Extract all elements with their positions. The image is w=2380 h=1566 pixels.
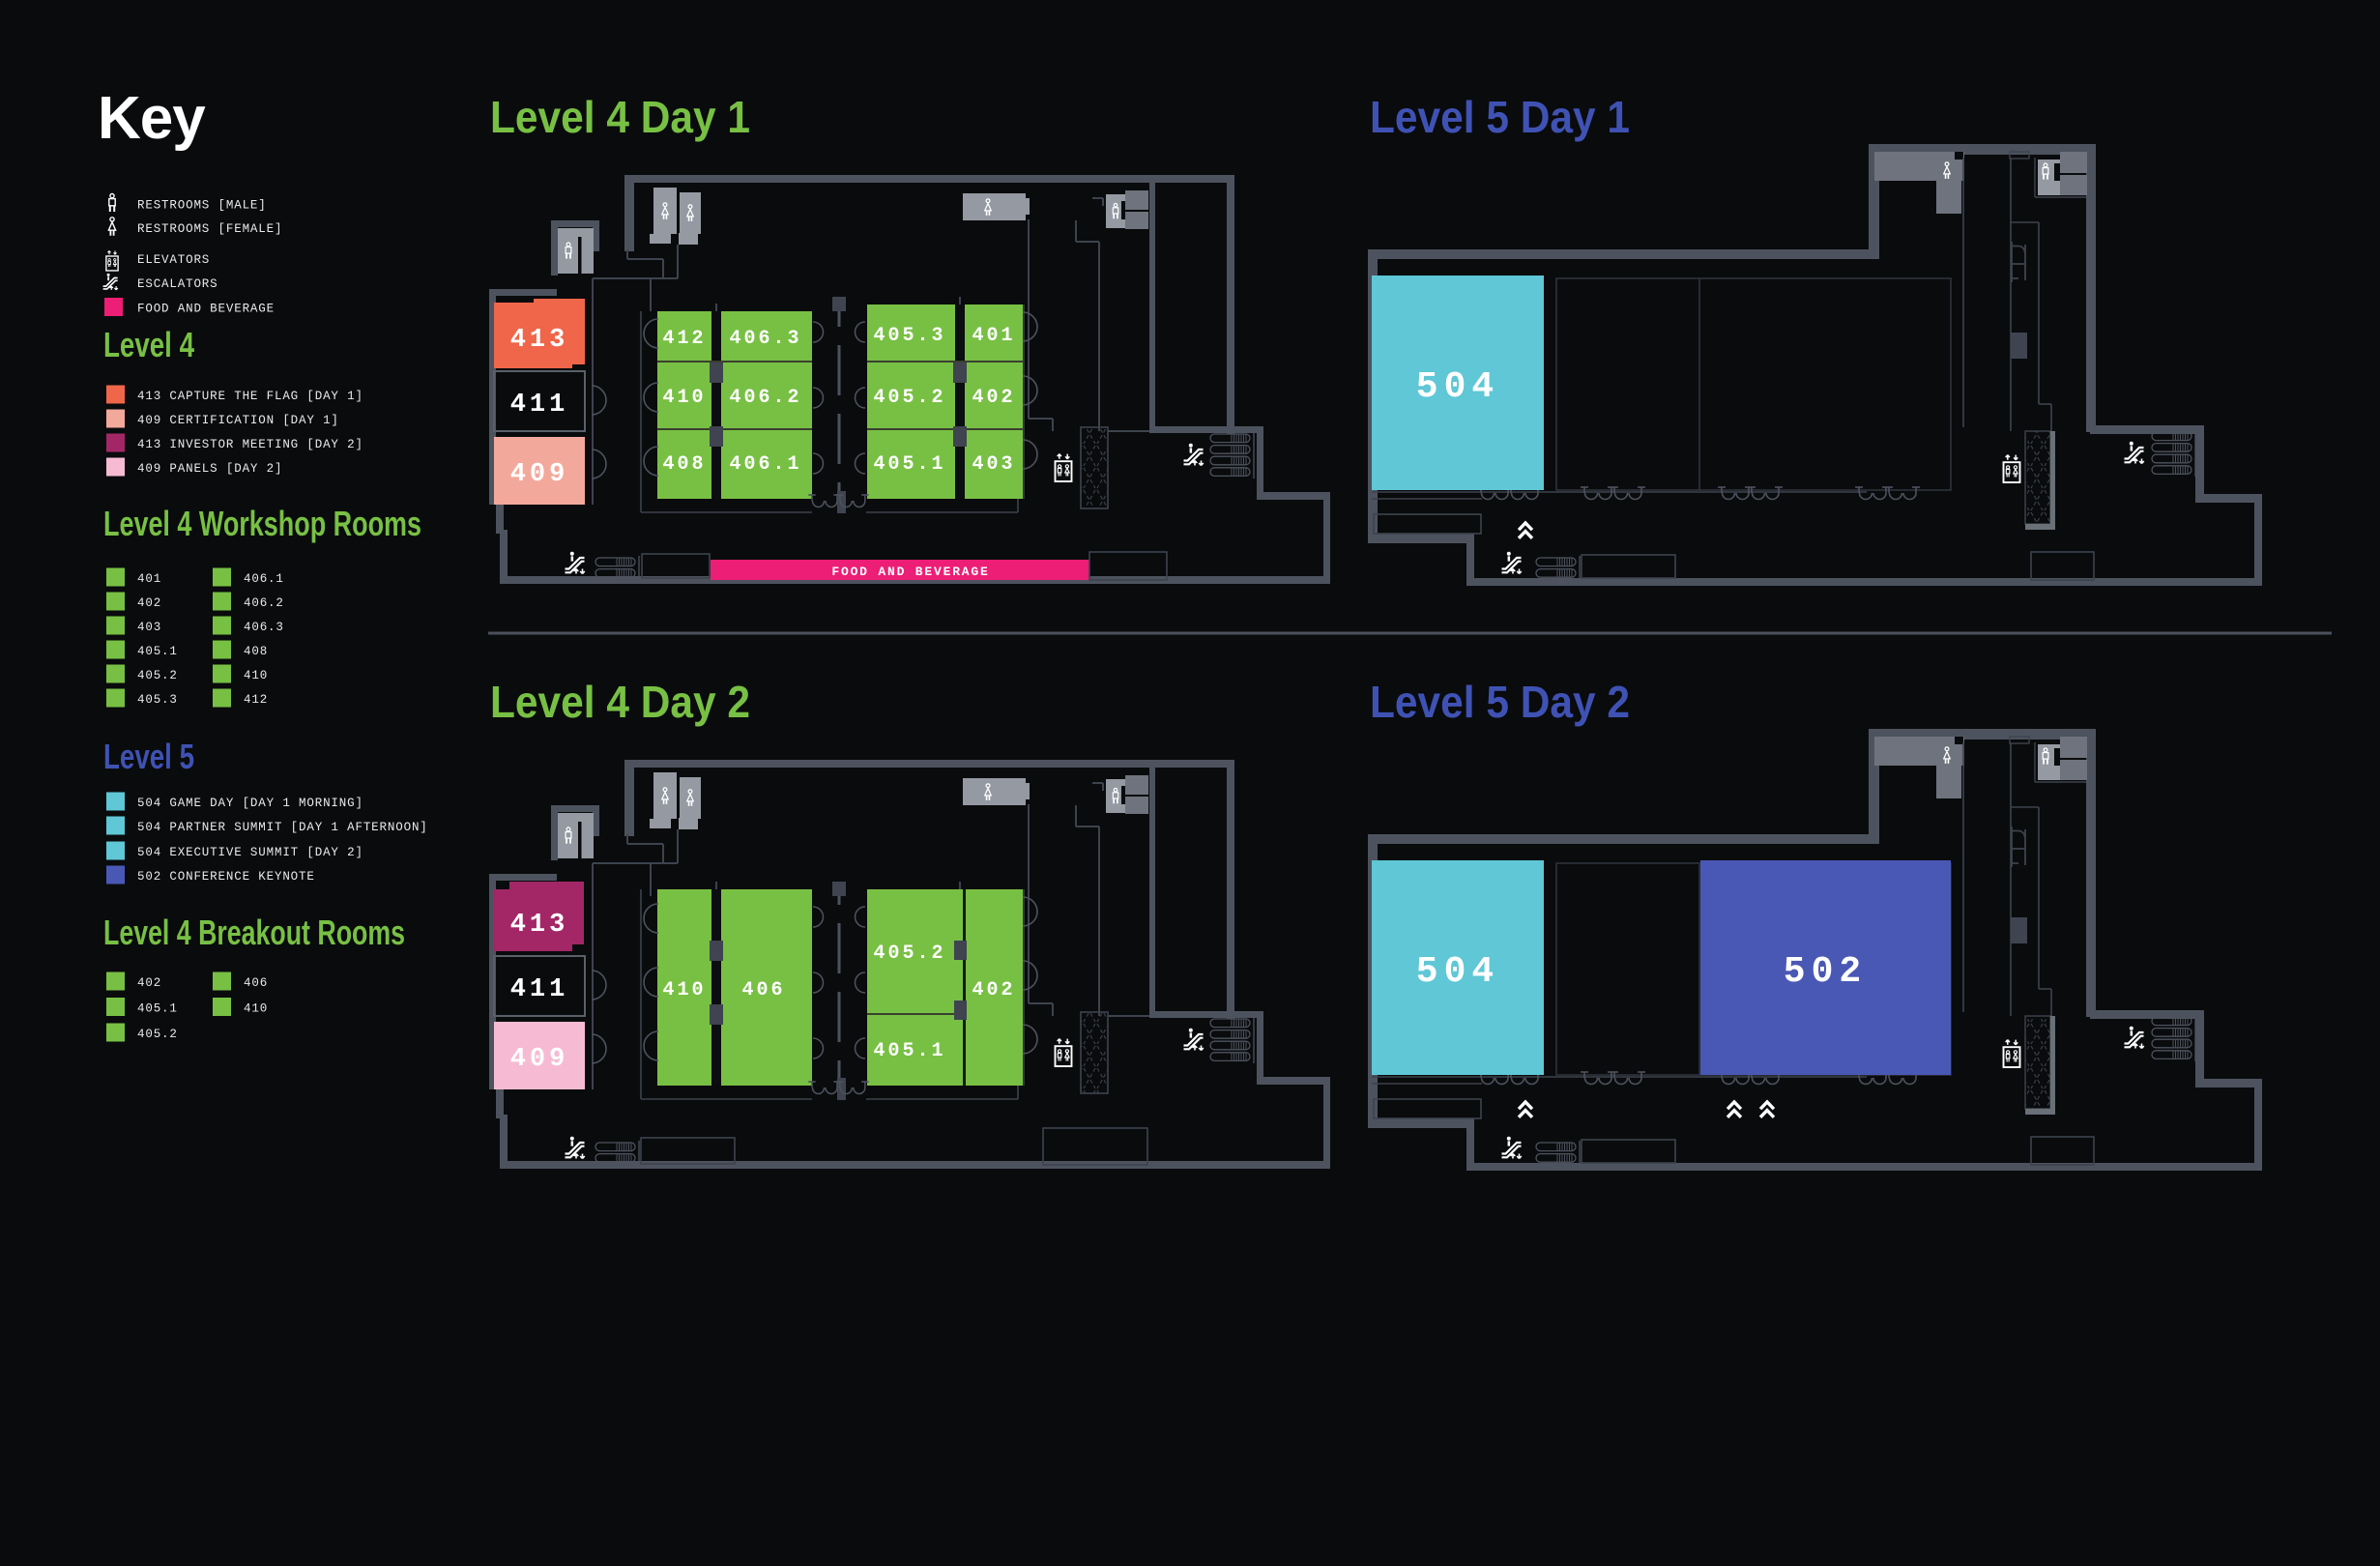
svg-text:410: 410 bbox=[662, 387, 706, 409]
svg-text:405.1: 405.1 bbox=[873, 453, 945, 476]
svg-text:413 CAPTURE THE FLAG [DAY 1]: 413 CAPTURE THE FLAG [DAY 1] bbox=[137, 390, 363, 403]
svg-text:FOOD AND BEVERAGE: FOOD AND BEVERAGE bbox=[831, 565, 989, 579]
svg-text:409 PANELS [DAY 2]: 409 PANELS [DAY 2] bbox=[137, 462, 282, 476]
svg-text:Level 4 Workshop Rooms: Level 4 Workshop Rooms bbox=[103, 504, 421, 543]
svg-text:408: 408 bbox=[244, 645, 268, 658]
svg-text:406.3: 406.3 bbox=[244, 621, 284, 634]
svg-text:ESCALATORS: ESCALATORS bbox=[137, 277, 218, 291]
svg-text:405.2: 405.2 bbox=[873, 942, 945, 965]
svg-text:Key: Key bbox=[98, 85, 206, 152]
svg-text:402: 402 bbox=[972, 979, 1015, 1001]
svg-text:409: 409 bbox=[510, 460, 569, 489]
svg-text:409: 409 bbox=[510, 1045, 569, 1074]
svg-text:405.1: 405.1 bbox=[137, 1002, 178, 1016]
svg-text:403: 403 bbox=[137, 621, 161, 634]
svg-text:405.2: 405.2 bbox=[873, 387, 945, 409]
svg-text:504 EXECUTIVE SUMMIT [DAY 2]: 504 EXECUTIVE SUMMIT [DAY 2] bbox=[137, 846, 363, 859]
svg-text:408: 408 bbox=[662, 453, 706, 476]
svg-text:405.1: 405.1 bbox=[873, 1040, 945, 1062]
svg-text:502: 502 bbox=[1784, 951, 1867, 993]
svg-text:504: 504 bbox=[1416, 366, 1499, 408]
svg-text:Level 4 Day 1: Level 4 Day 1 bbox=[490, 92, 750, 142]
svg-text:402: 402 bbox=[137, 976, 161, 990]
svg-text:RESTROOMS [FEMALE]: RESTROOMS [FEMALE] bbox=[137, 222, 282, 236]
svg-text:405.1: 405.1 bbox=[137, 645, 178, 658]
svg-text:FOOD AND BEVERAGE: FOOD AND BEVERAGE bbox=[137, 303, 275, 316]
svg-text:410: 410 bbox=[662, 979, 706, 1001]
svg-text:410: 410 bbox=[244, 1002, 268, 1016]
svg-text:504 GAME DAY [DAY 1 MORNING]: 504 GAME DAY [DAY 1 MORNING] bbox=[137, 797, 363, 810]
svg-text:406.1: 406.1 bbox=[244, 572, 284, 586]
svg-text:402: 402 bbox=[972, 387, 1015, 409]
svg-text:405.2: 405.2 bbox=[137, 1028, 178, 1041]
svg-text:401: 401 bbox=[137, 572, 161, 586]
svg-text:411: 411 bbox=[510, 391, 569, 420]
svg-text:405.3: 405.3 bbox=[137, 693, 178, 707]
svg-text:412: 412 bbox=[662, 328, 706, 350]
svg-text:ELEVATORS: ELEVATORS bbox=[137, 253, 210, 267]
svg-text:504 PARTNER SUMMIT [DAY 1 AFTE: 504 PARTNER SUMMIT [DAY 1 AFTERNOON] bbox=[137, 821, 428, 834]
svg-text:406.3: 406.3 bbox=[729, 328, 801, 350]
svg-text:413: 413 bbox=[510, 326, 569, 355]
svg-text:Level 4 Breakout Rooms: Level 4 Breakout Rooms bbox=[103, 913, 405, 952]
svg-text:502 CONFERENCE KEYNOTE: 502 CONFERENCE KEYNOTE bbox=[137, 870, 315, 884]
svg-text:Level 5 Day 2: Level 5 Day 2 bbox=[1370, 677, 1630, 727]
svg-text:406: 406 bbox=[244, 976, 268, 990]
svg-text:406.2: 406.2 bbox=[729, 387, 801, 409]
svg-text:Level 5 Day 1: Level 5 Day 1 bbox=[1370, 92, 1630, 142]
svg-text:Level 5: Level 5 bbox=[103, 737, 194, 776]
svg-text:RESTROOMS [MALE]: RESTROOMS [MALE] bbox=[137, 199, 267, 213]
svg-text:406: 406 bbox=[741, 979, 785, 1001]
svg-text:409 CERTIFICATION [DAY 1]: 409 CERTIFICATION [DAY 1] bbox=[137, 414, 339, 427]
svg-text:405.3: 405.3 bbox=[873, 325, 945, 347]
svg-text:504: 504 bbox=[1416, 951, 1499, 993]
svg-text:406.2: 406.2 bbox=[244, 596, 284, 610]
svg-text:Level 4 Day 2: Level 4 Day 2 bbox=[490, 677, 750, 727]
svg-text:410: 410 bbox=[244, 669, 268, 682]
svg-text:Level 4: Level 4 bbox=[103, 325, 194, 364]
svg-text:402: 402 bbox=[137, 596, 161, 610]
svg-text:405.2: 405.2 bbox=[137, 669, 178, 682]
svg-text:412: 412 bbox=[244, 693, 268, 707]
svg-text:403: 403 bbox=[972, 453, 1015, 476]
svg-text:406.1: 406.1 bbox=[729, 453, 801, 476]
svg-text:411: 411 bbox=[510, 975, 569, 1004]
svg-text:413 INVESTOR MEETING [DAY 2]: 413 INVESTOR MEETING [DAY 2] bbox=[137, 438, 363, 451]
svg-text:413: 413 bbox=[510, 911, 569, 940]
svg-text:401: 401 bbox=[972, 325, 1015, 347]
